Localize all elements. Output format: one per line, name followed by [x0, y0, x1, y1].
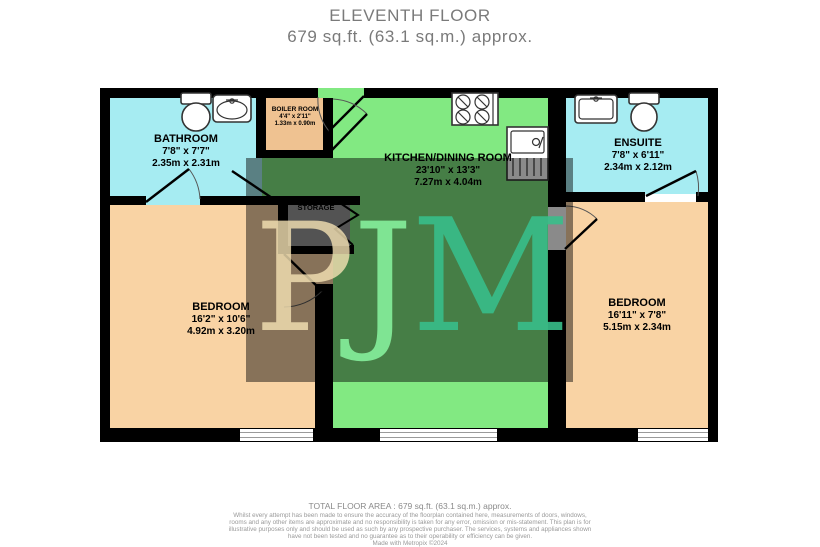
page-title: ELEVENTH FLOOR 679 sq.ft. (63.1 sq.m.) a…	[0, 5, 820, 48]
label-ensuite: ENSUITE 7'8" x 6'11" 2.34m x 2.12m	[570, 137, 706, 174]
bathroom-door	[146, 169, 200, 202]
label-storage: STORAGE	[280, 203, 352, 212]
ensuite-door	[646, 171, 699, 196]
room-size-imperial: 4'4" x 2'11"	[264, 114, 326, 121]
footer-disclaimer-block: Whilst every attempt has been made to en…	[225, 512, 595, 547]
room-size-metric: 5.15m x 2.34m	[566, 322, 708, 334]
room-size-metric: 1.33m x 0.90m	[264, 121, 326, 128]
room-size-metric: 2.34m x 2.12m	[570, 162, 706, 174]
label-bedroom-right: BEDROOM 16'11" x 7'8" 5.15m x 2.34m	[566, 297, 708, 334]
label-kitchen: KITCHEN/DINING ROOM 23'10" x 13'3" 7.27m…	[353, 152, 543, 189]
floor-area: 679 sq.ft. (63.1 sq.m.) approx.	[0, 26, 820, 47]
label-boiler: BOILER ROOM 4'4" x 2'11" 1.33m x 0.90m	[264, 106, 326, 128]
room-name: KITCHEN/DINING ROOM	[353, 152, 543, 165]
metropix-credit: Made with Metropix ©2024	[225, 540, 595, 547]
hob-icon	[452, 93, 498, 125]
total-floor-area: TOTAL FLOOR AREA : 679 sq.ft. (63.1 sq.m…	[0, 501, 820, 511]
watermark-letter-p: P	[254, 192, 353, 366]
room-name: STORAGE	[298, 203, 335, 212]
floorplan-page: ELEVENTH FLOOR 679 sq.ft. (63.1 sq.m.) a…	[0, 0, 820, 547]
room-size-imperial: 7'8" x 6'11"	[570, 150, 706, 162]
room-size-imperial: 16'2" x 10'6"	[116, 314, 326, 326]
room-name: BOILER ROOM	[264, 106, 326, 114]
disclaimer-text: Whilst every attempt has been made to en…	[229, 512, 592, 540]
room-size-metric: 2.35m x 2.31m	[112, 158, 260, 170]
room-name: BEDROOM	[566, 297, 708, 310]
toilet-icon	[181, 93, 211, 131]
room-name: BEDROOM	[116, 301, 326, 314]
room-size-metric: 4.92m x 3.20m	[116, 326, 326, 338]
room-name: BATHROOM	[112, 133, 260, 146]
watermark-letter-j: J	[353, 192, 411, 366]
room-size-imperial: 16'11" x 7'8"	[566, 310, 708, 322]
room-size-imperial: 23'10" x 13'3"	[353, 165, 543, 177]
label-bedroom-left: BEDROOM 16'2" x 10'6" 4.92m x 3.20m	[116, 301, 326, 338]
floor-name: ELEVENTH FLOOR	[0, 5, 820, 26]
ensuite-sink-icon	[575, 95, 617, 123]
sink-icon	[213, 95, 251, 122]
room-name: ENSUITE	[570, 137, 706, 150]
label-bathroom: BATHROOM 7'8" x 7'7" 2.35m x 2.31m	[112, 133, 260, 170]
watermark-letter-m: M	[411, 185, 569, 367]
ensuite-toilet-icon	[629, 93, 659, 131]
room-size-imperial: 7'8" x 7'7"	[112, 146, 260, 158]
room-size-metric: 7.27m x 4.04m	[353, 177, 543, 189]
